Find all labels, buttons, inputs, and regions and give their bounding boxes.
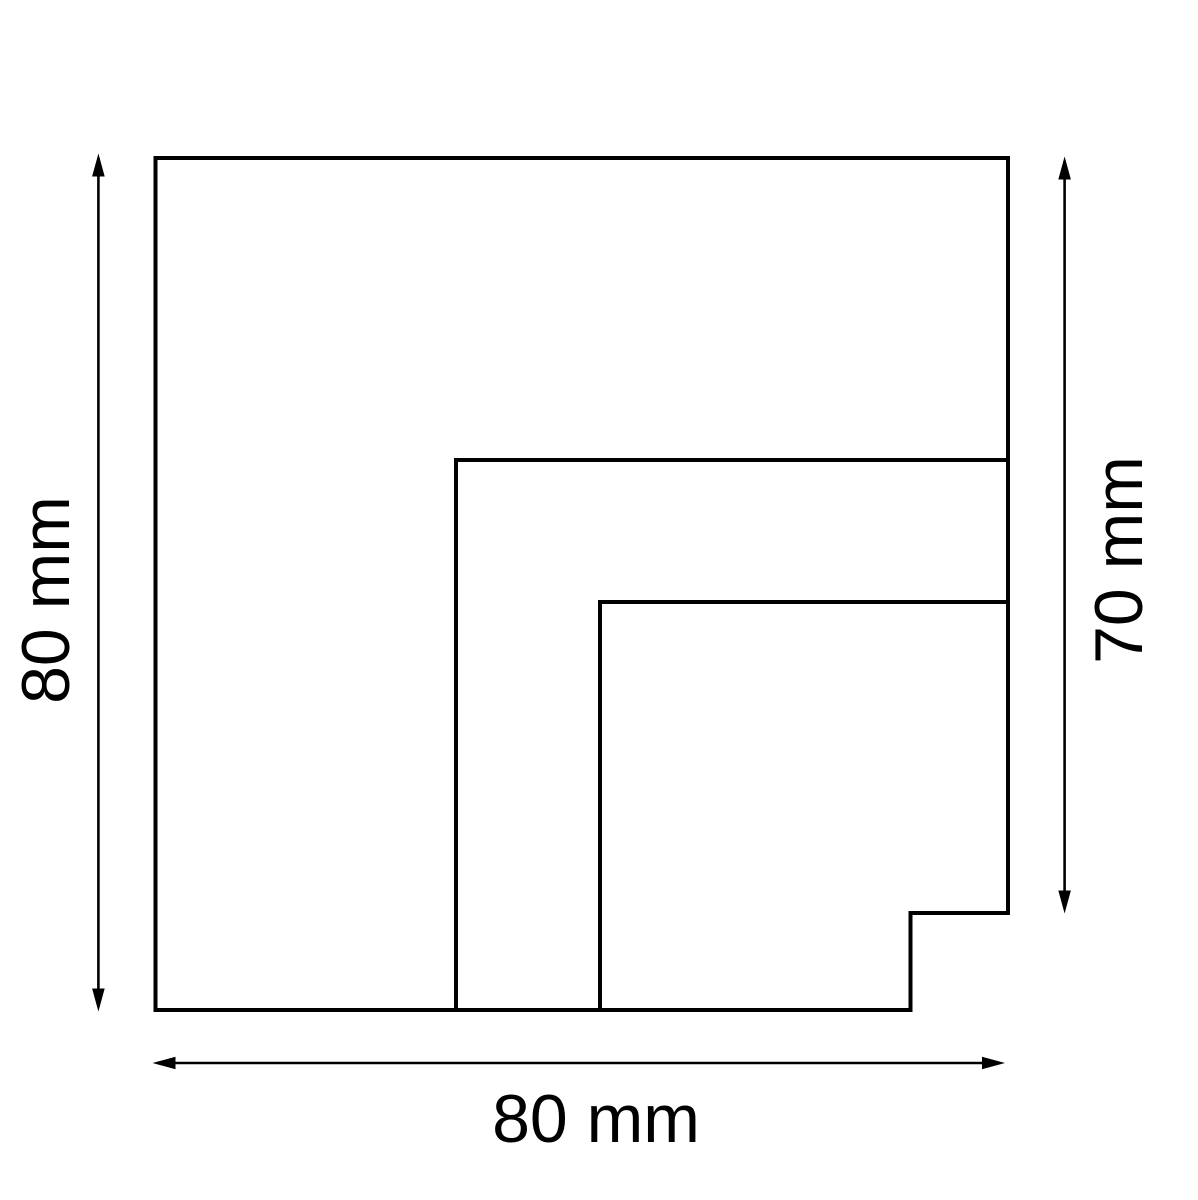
svg-text:80 mm: 80 mm <box>492 1081 700 1157</box>
svg-text:70 mm: 70 mm <box>1081 456 1157 664</box>
svg-text:80 mm: 80 mm <box>8 496 84 704</box>
